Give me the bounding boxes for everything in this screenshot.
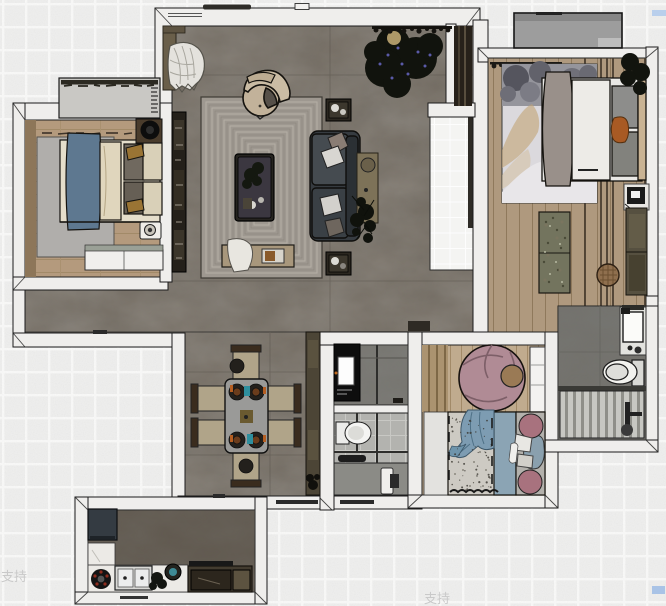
svg-text:支持: 支持 bbox=[1, 569, 27, 584]
svg-text:支持: 支持 bbox=[424, 591, 450, 606]
